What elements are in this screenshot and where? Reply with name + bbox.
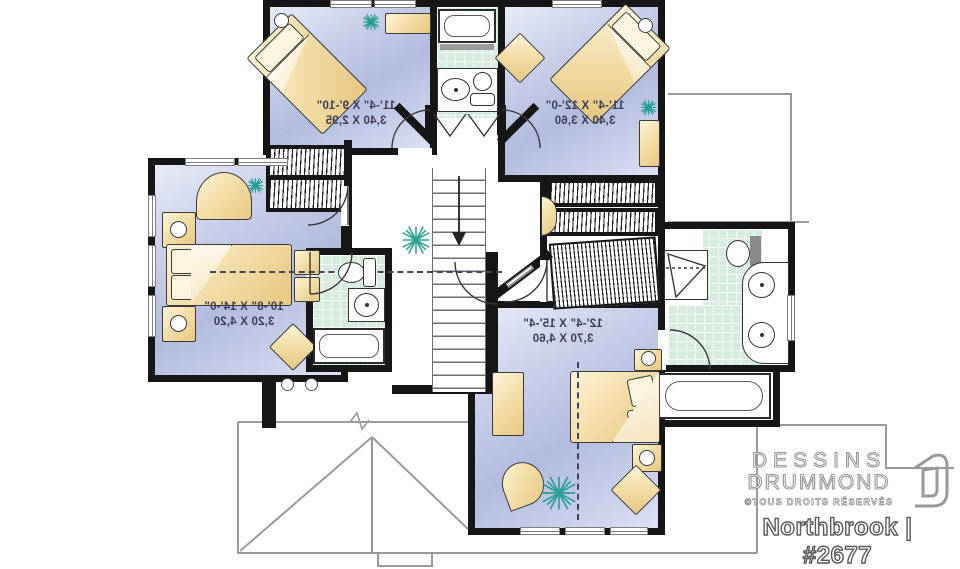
shower-symbol [664,250,708,300]
company-name-line1: DESSINS [735,450,903,472]
closet-shelving-symbol [547,208,659,236]
dresser-symbol [385,13,431,34]
window-symbol [506,265,535,288]
room-dimensions-metric: 3,20 X 4,20 [182,315,306,330]
toilet-symbol [473,72,492,91]
room-dimensions-metric: 3,40 X 3,60 [512,114,658,129]
tub-ledge [440,44,494,50]
pillow-symbol [171,275,193,300]
window-symbol [148,295,156,337]
closet-shelving-symbol [547,179,659,207]
sink-symbol [748,322,775,348]
bench-symbol [294,277,320,302]
room-dimensions: 12'-4" X 15'-4" 3,70 X 4,60 [498,317,628,346]
drummond-logo-icon [907,450,949,510]
window-symbol [148,245,156,287]
bed-symbol [166,244,292,306]
toilet-symbol [363,258,376,287]
dresser-symbol [492,372,524,436]
window-symbol [787,295,795,341]
lamp-symbol [639,450,655,466]
room-dimensions-metric: 3,40 X 2,95 [282,114,430,129]
sink-symbol [441,78,470,101]
staircase [432,168,486,392]
room-dimensions: 10'-8" X 14'-0" 3,20 X 4,20 [182,300,306,329]
bathtub-symbol [313,328,385,364]
plant-icon [402,226,430,254]
room-dimensions-imperial: 12'-4" X 15'-4" [498,317,628,332]
window-symbol [148,195,156,237]
window-symbol [520,527,560,535]
room-dimensions-imperial: 10'-8" X 14'-0" [182,300,306,315]
lamp-symbol [274,13,289,28]
branding-block: DESSINS DRUMMOND ©TOUS DROITS RÉSERVÉS N… [735,450,950,569]
plan-title: Northbrook | #2677 [735,514,940,569]
plant-icon [542,476,576,510]
room-dimensions: 11'-4" X 12'-0" 3,40 X 3,60 [512,99,658,128]
closet-shelving-symbol [549,236,660,309]
soaker-tub-symbol [657,373,771,419]
room-dimensions-imperial: 11'-4" X 9'-10" [282,99,430,114]
company-name-line2: DRUMMOND [735,472,903,494]
bed-fold [191,245,232,305]
column-symbol [305,378,318,391]
column-symbol [281,378,294,391]
bathtub-symbol [438,9,496,43]
lamp-symbol [641,351,656,366]
door-opening [341,186,349,226]
pillow-symbol [171,249,193,274]
plant-icon [248,178,263,193]
window-symbol [330,0,372,8]
closet-shelving-symbol [266,176,352,212]
wall-segment [262,376,276,428]
door-opening [540,260,548,302]
lamp-symbol [170,221,187,238]
floor-plan: 11'-4" X 9'-10" 3,40 X 2,95 11'-4" X 12'… [0,0,960,569]
room-dimensions-metric: 3,70 X 4,60 [498,332,628,347]
sink-symbol [748,272,775,298]
plant-icon [363,14,379,30]
bed-symbol [570,371,660,443]
rights-notice: ©TOUS DROITS RÉSERVÉS [735,497,903,507]
window-symbol [238,158,288,166]
room-dimensions-imperial: 11'-4" X 12'-0" [512,99,658,114]
window-symbol [565,527,605,535]
window-symbol [185,158,235,166]
lamp-symbol [638,18,653,33]
window-symbol [610,527,648,535]
window-symbol [374,0,416,8]
toilet-symbol [470,93,495,106]
door-opening [398,148,432,156]
toilet-symbol [338,262,365,283]
room-dimensions: 11'-4" X 9'-10" 3,40 X 2,95 [282,99,430,128]
sink-symbol [354,293,379,317]
toilet-symbol [726,240,750,267]
window-symbol [552,0,602,8]
ceiling-line [577,362,579,520]
